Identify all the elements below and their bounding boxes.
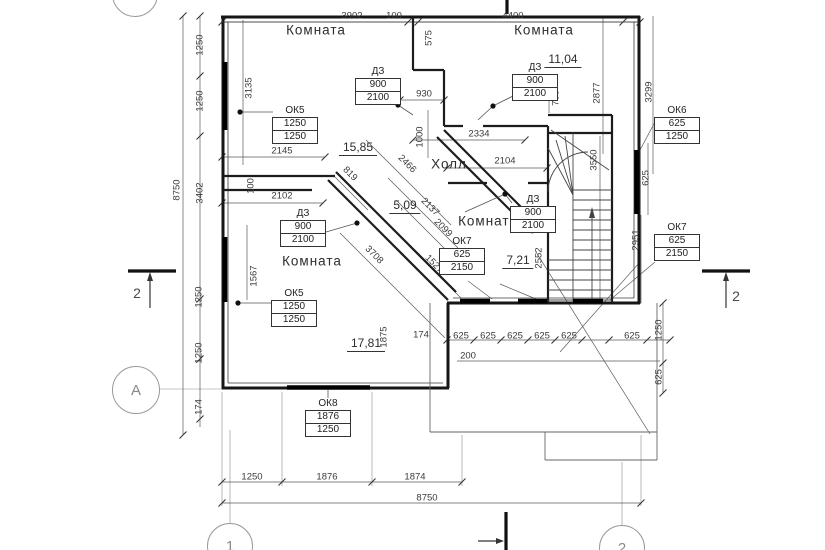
spec-block-label: ОК8 [310,398,345,411]
spec-block-label: ДЗ [289,208,318,221]
dimension-label: 2877 [592,82,603,103]
dimension-label: 1250 [194,286,205,307]
spec-block-value: 900 [280,220,326,234]
room-area: 15,85 [339,140,377,156]
dimension-label: 1250 [195,90,206,111]
axis-marker-label: 2 [618,540,626,550]
dimension-label: 930 [416,89,432,100]
plan-linework [0,0,825,550]
floor-plan-canvas: 3902100440057528773299930100070023342104… [0,0,825,550]
dimension-label: 1874 [404,472,425,483]
dimension-label: 625 [453,331,469,342]
dimension-label: 625 [561,331,577,342]
dimension-label: 3550 [589,149,600,170]
dimension-label: 625 [654,369,665,385]
room-name: Комната [286,23,346,38]
spec-block-value: 1250 [271,313,317,327]
axis-marker-label: 1 [226,538,234,550]
spec-block: ОК818761250 [305,398,351,437]
spec-block-label: ОК6 [659,105,694,118]
dimension-label: 1876 [316,472,337,483]
spec-block: ДЗ9002100 [280,208,326,247]
spec-block: ДЗ9002100 [510,194,556,233]
dimension-label: 8750 [172,179,183,200]
dimension-label: 2334 [468,129,489,140]
spec-block-value: 625 [654,117,700,131]
dimension-label: 2104 [494,156,515,167]
dimension-label: 2102 [271,191,292,202]
dimension-label: 2951 [631,229,642,250]
spec-block-value: 1876 [305,410,351,424]
spec-block-value: 1250 [272,130,318,144]
dimension-label: 1250 [194,342,205,363]
dimension-label: 100 [246,178,257,194]
spec-block-value: 2100 [512,87,558,101]
spec-block-value: 1250 [305,423,351,437]
spec-block: ДЗ9002100 [512,62,558,101]
room-name: Комната [458,214,518,229]
dimension-label: 1250 [195,34,206,55]
axis-marker: А [112,366,160,414]
dimension-label: 4400 [502,11,523,22]
dimension-label: 625 [624,331,640,342]
dimension-label: 625 [507,331,523,342]
dimension-label: 8750 [416,493,437,504]
spec-block-value: 1250 [654,130,700,144]
spec-block-label: ОК5 [277,105,312,118]
spec-block-value: 2100 [355,91,401,105]
extension-lines [159,389,641,525]
spec-block-value: 900 [510,206,556,220]
dimension-label: 625 [480,331,496,342]
axis-marker-label: А [131,382,141,399]
spec-block: ОК512501250 [271,288,317,327]
terrace-outline [430,303,657,460]
spec-block-value: 2150 [439,261,485,275]
spec-block-value: 2150 [654,247,700,261]
room-name: Комната [282,254,342,269]
spec-block-value: 900 [512,74,558,88]
dimension-label: 174 [413,330,429,341]
dimension-label: 200 [460,351,476,362]
spec-block-label: ОК7 [659,222,694,235]
spec-block-value: 2100 [280,233,326,247]
dimension-label: 1250 [241,472,262,483]
room-name: Холл [431,157,467,172]
spec-block-value: 625 [654,234,700,248]
spec-block-value: 1250 [271,300,317,314]
spec-block-label: ДЗ [521,62,550,75]
section-marker-label: 2 [133,285,141,301]
axis-marker-label: Б [130,0,140,3]
dimension-label: 2145 [271,146,292,157]
dimension-label: 3299 [644,81,655,102]
spec-block-value: 625 [439,248,485,262]
room-name: Комната [514,23,574,38]
spec-block: ОК66251250 [654,105,700,144]
spec-block-label: ДЗ [519,194,548,207]
stair-direction-arrow [589,207,595,218]
dimension-label: 1250 [654,319,665,340]
spec-block: ОК512501250 [272,105,318,144]
dimension-label: 625 [534,331,550,342]
spec-block: ДЗ9002100 [355,66,401,105]
dimension-label: 174 [194,399,205,415]
dimension-label: 3402 [195,182,206,203]
spec-block-value: 2100 [510,219,556,233]
dimension-label: 2552 [534,247,545,268]
room-area: 17,81 [347,336,385,352]
spec-block-label: ОК7 [444,236,479,249]
dimension-label: 625 [641,170,652,186]
room-area: 5,09 [389,198,420,214]
spec-block-label: ДЗ [364,66,393,79]
dimension-label: 3902 [341,11,362,22]
dimension-label: 100 [386,11,402,22]
stair [548,130,612,303]
spec-block: ОК76252150 [654,222,700,261]
dimension-label: 1567 [249,265,260,286]
section-marker-label: 2 [732,288,740,304]
spec-block-value: 900 [355,78,401,92]
dimension-label: 3135 [244,77,255,98]
spec-block-value: 1250 [272,117,318,131]
room-area: 7,21 [502,253,533,269]
spec-block-label: ОК5 [276,288,311,301]
dimension-label: 575 [424,30,435,46]
dimension-label: 1000 [415,126,426,147]
spec-block: ОК76252150 [439,236,485,275]
